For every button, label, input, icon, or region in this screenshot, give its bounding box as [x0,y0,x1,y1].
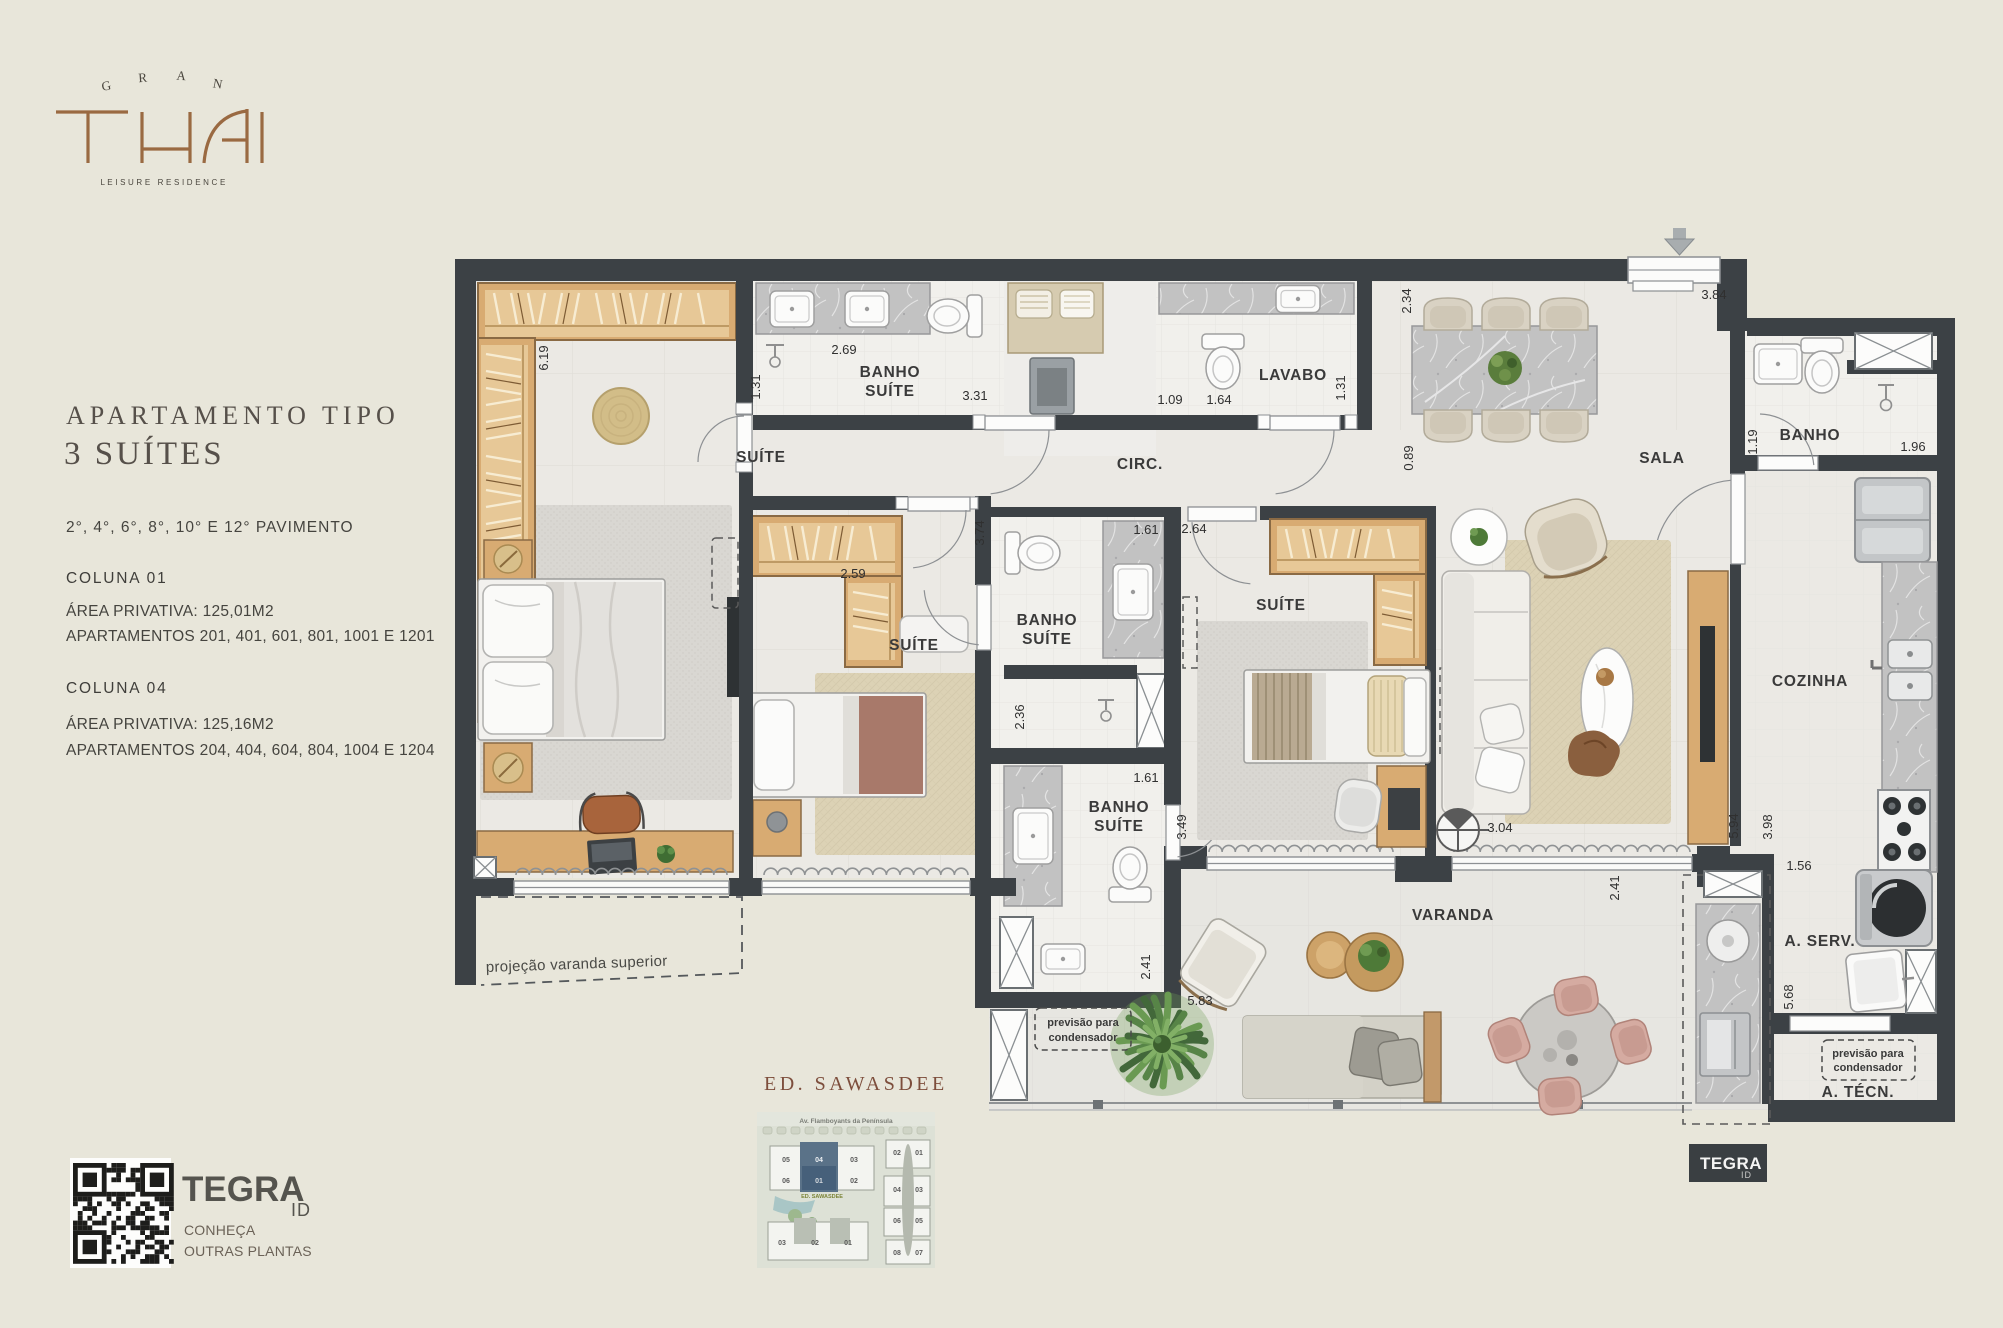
svg-text:3.49: 3.49 [1174,814,1189,839]
svg-text:SUÍTE: SUÍTE [1256,597,1306,614]
svg-text:CIRC.: CIRC. [1117,456,1163,473]
svg-text:ID: ID [1741,1170,1752,1180]
svg-text:APARTAMENTOS 201, 401, 601, 80: APARTAMENTOS 201, 401, 601, 801, 1001 E … [66,628,435,645]
svg-text:3.04: 3.04 [1487,820,1512,835]
svg-text:VARANDA: VARANDA [1412,907,1494,924]
svg-text:3.84: 3.84 [1701,287,1726,302]
svg-text:previsão para: previsão para [1832,1048,1904,1060]
svg-text:1.64: 1.64 [1206,392,1231,407]
svg-text:07: 07 [915,1250,923,1257]
svg-text:2.34: 2.34 [1399,288,1414,313]
svg-text:02: 02 [893,1150,901,1157]
svg-text:04: 04 [893,1187,901,1194]
svg-text:01: 01 [915,1150,923,1157]
svg-text:APARTAMENTO TIPO: APARTAMENTO TIPO [66,401,400,430]
svg-text:1.31: 1.31 [1333,375,1348,400]
svg-text:03: 03 [850,1157,858,1164]
svg-text:03: 03 [778,1240,786,1247]
svg-text:SUÍTE: SUÍTE [736,449,786,466]
svg-text:3 SUÍTES: 3 SUÍTES [64,435,225,472]
svg-text:5.94: 5.94 [1726,813,1741,838]
svg-text:2.41: 2.41 [1138,954,1153,979]
svg-text:COLUNA 01: COLUNA 01 [66,570,168,587]
svg-text:BANHO: BANHO [1089,799,1150,816]
svg-text:condensador: condensador [1048,1032,1118,1044]
svg-text:previsão para: previsão para [1047,1017,1119,1029]
svg-text:R: R [138,70,148,86]
svg-text:CONHEÇA: CONHEÇA [184,1222,256,1238]
svg-text:2.36: 2.36 [1012,704,1027,729]
svg-text:ID: ID [291,1200,311,1220]
svg-text:BANHO: BANHO [860,364,921,381]
svg-text:0.89: 0.89 [1401,445,1416,470]
svg-text:2°, 4°, 6°, 8°, 10° E 12° PAVI: 2°, 4°, 6°, 8°, 10° E 12° PAVIMENTO [66,519,354,536]
svg-text:COZINHA: COZINHA [1772,673,1848,690]
svg-text:A: A [176,68,187,84]
svg-text:TEGRA: TEGRA [1700,1154,1762,1173]
svg-text:1.56: 1.56 [1786,858,1811,873]
svg-text:3.98: 3.98 [1760,814,1775,839]
svg-text:ÁREA PRIVATIVA: 125,16M2: ÁREA PRIVATIVA: 125,16M2 [66,716,274,733]
svg-text:3.74: 3.74 [972,520,987,545]
svg-text:BANHO: BANHO [1017,612,1078,629]
svg-text:ÁREA PRIVATIVA: 125,01M2: ÁREA PRIVATIVA: 125,01M2 [66,603,274,620]
svg-text:02: 02 [850,1178,858,1185]
svg-text:03: 03 [915,1187,923,1194]
svg-text:5.68: 5.68 [1781,984,1796,1009]
svg-text:01: 01 [844,1240,852,1247]
svg-text:2.41: 2.41 [1607,875,1622,900]
svg-text:COLUNA 04: COLUNA 04 [66,680,168,697]
svg-text:LAVABO: LAVABO [1259,367,1327,384]
svg-text:08: 08 [893,1250,901,1257]
svg-text:1.61: 1.61 [1133,522,1158,537]
svg-text:ED. SAWASDEE: ED. SAWASDEE [801,1194,843,1200]
svg-text:3.31: 3.31 [962,388,987,403]
svg-text:SUÍTE: SUÍTE [1094,818,1144,835]
svg-text:SUÍTE: SUÍTE [889,637,939,654]
svg-text:5.83: 5.83 [1187,993,1212,1008]
svg-text:06: 06 [893,1218,901,1225]
svg-text:Av. Flamboyants da Península: Av. Flamboyants da Península [799,1118,893,1125]
svg-text:BANHO: BANHO [1780,427,1841,444]
svg-text:OUTRAS PLANTAS: OUTRAS PLANTAS [184,1243,312,1259]
svg-text:L E I S U R E R E S I D E N: L E I S U R E R E S I D E N C E [101,178,226,187]
svg-text:2.69: 2.69 [831,342,856,357]
svg-text:04: 04 [815,1157,823,1164]
svg-text:A. TÉCN.: A. TÉCN. [1822,1084,1895,1101]
svg-text:A. SERV.: A. SERV. [1784,933,1855,950]
svg-text:05: 05 [782,1157,790,1164]
svg-text:1.19: 1.19 [1745,429,1760,454]
svg-text:2.59: 2.59 [840,566,865,581]
svg-text:1.61: 1.61 [1133,770,1158,785]
svg-text:SALA: SALA [1639,450,1684,467]
svg-text:condensador: condensador [1833,1062,1903,1074]
svg-text:01: 01 [815,1178,823,1185]
svg-text:APARTAMENTOS 204, 404, 604, 80: APARTAMENTOS 204, 404, 604, 804, 1004 E … [66,742,435,759]
svg-text:1.96: 1.96 [1900,439,1925,454]
svg-text:6.19: 6.19 [536,345,551,370]
svg-text:06: 06 [782,1178,790,1185]
svg-text:ED. SAWASDEE: ED. SAWASDEE [764,1073,948,1095]
svg-text:SUÍTE: SUÍTE [1022,631,1072,648]
svg-text:05: 05 [915,1218,923,1225]
svg-text:02: 02 [811,1240,819,1247]
svg-text:1.31: 1.31 [748,374,763,399]
svg-text:1.09: 1.09 [1157,392,1182,407]
svg-text:TEGRA: TEGRA [182,1170,305,1209]
svg-text:SUÍTE: SUÍTE [865,383,915,400]
svg-text:2.64: 2.64 [1181,521,1206,536]
